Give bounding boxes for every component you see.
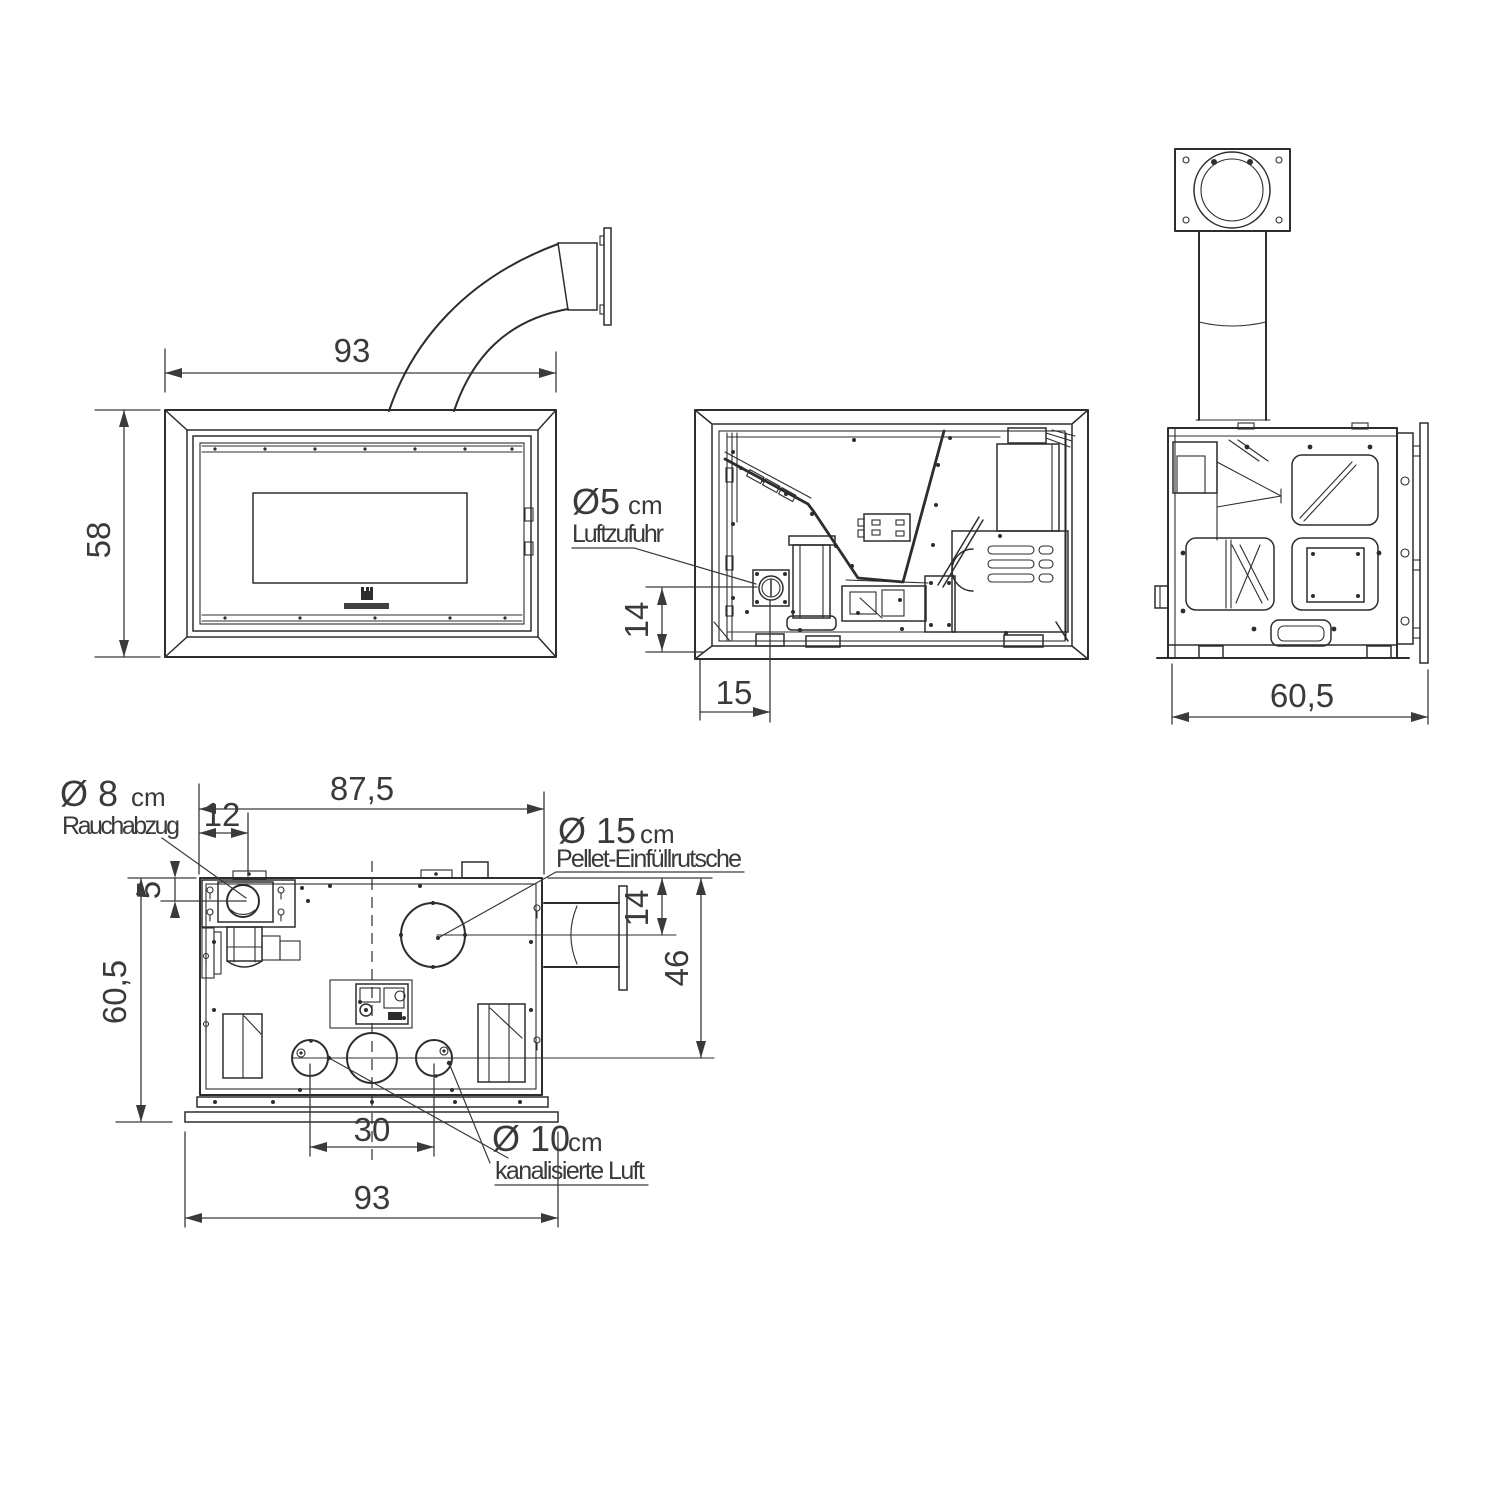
dim-label-smoke-x: 12 (204, 796, 241, 833)
auger-assembly (787, 536, 955, 632)
hopper-bracket (858, 514, 910, 541)
air-inlet-diameter: Ø5 (572, 481, 620, 522)
top-view: 87,5 12 5 60,5 14 (60, 770, 744, 1227)
smoke-down-pipe (227, 927, 262, 961)
dim-section-inlet-height: 14 (618, 587, 757, 652)
dim-top-chute-y: 14 (548, 878, 712, 935)
flue-elbow-pipe (389, 228, 611, 411)
flue-pipe-vertical (1193, 231, 1273, 428)
dim-label-top-depth: 60,5 (96, 960, 133, 1024)
ducted-air-diameter: Ø 10 (492, 1118, 570, 1159)
technical-drawing: 93 58 (0, 0, 1500, 1500)
front-frame (165, 410, 556, 657)
handle (1271, 620, 1331, 646)
dim-label-inlet-offset: 15 (716, 674, 753, 711)
drawing-canvas: 93 58 (0, 0, 1500, 1500)
side-view: 60,5 (1155, 149, 1428, 724)
smoke-outlet-diameter: Ø 8 (60, 773, 118, 814)
pellet-hopper (725, 431, 983, 587)
dim-label-smoke-y: 5 (130, 881, 167, 899)
front-frame-plate (1397, 433, 1413, 644)
label-air-inlet: Ø5 cm Luftzufuhr (572, 481, 756, 584)
panel-top-right (1292, 455, 1378, 525)
air-inlet-unit: cm (628, 490, 663, 520)
panel-bottom-left (1186, 538, 1274, 610)
dim-top-ducts-y: 46 (658, 878, 706, 1058)
pellet-chute-label: Pellet-Einfüllrutsche (556, 845, 742, 873)
glass-door (193, 436, 533, 631)
label-pellet-chute: Ø 15 cm Pellet-Einfüllrutsche (436, 810, 744, 940)
motor-assembly (330, 980, 412, 1028)
ducted-air-unit: cm (568, 1127, 603, 1157)
door-glass-window (253, 493, 467, 583)
smoke-outlet-label: Rauchabzug (62, 812, 180, 840)
front-trim-plate (1420, 423, 1428, 663)
dim-label-front-width: 93 (334, 332, 371, 369)
section-screws (731, 436, 1008, 635)
dim-section-inlet-offset: 15 (700, 601, 770, 722)
section-view: 14 15 Ø5 cm Luftzufuhr (572, 410, 1088, 722)
ducted-air-circles (292, 1033, 714, 1083)
air-inlet-label: Luftzufuhr (572, 520, 664, 548)
dim-label-duct-spacing: 30 (354, 1111, 391, 1148)
dim-label-body-width: 87,5 (330, 770, 394, 807)
dim-front-height: 58 (80, 410, 160, 657)
ducted-air-label: kanalisierte Luft (495, 1157, 645, 1185)
dim-label-chute-y: 14 (618, 890, 655, 927)
dim-top-depth: 60,5 (96, 878, 172, 1122)
panel-bottom-right (1292, 538, 1378, 610)
smoke-outlet-unit: cm (131, 782, 166, 812)
flue-top-flange (1175, 149, 1290, 231)
dim-side-depth: 60,5 (1172, 664, 1428, 724)
brand-logo (344, 587, 389, 609)
bracket-right (478, 1004, 525, 1082)
dim-top-smoke-x: 12 (199, 796, 248, 876)
dim-label-total-width: 93 (354, 1179, 391, 1216)
fan-assembly (952, 531, 1068, 632)
dim-label-ducts-y: 46 (658, 950, 695, 987)
control-box (997, 428, 1075, 531)
top-body (200, 862, 542, 1095)
flue-wall-flange (604, 228, 611, 325)
dim-label-inlet-height: 14 (618, 602, 655, 639)
side-body (1155, 423, 1428, 663)
dim-label-side-depth: 60,5 (1270, 677, 1334, 714)
dim-top-body-width: 87,5 (199, 770, 544, 874)
front-view: 93 58 (80, 228, 611, 657)
dim-label-front-height: 58 (80, 522, 117, 559)
smoke-outlet-assembly (202, 871, 310, 978)
